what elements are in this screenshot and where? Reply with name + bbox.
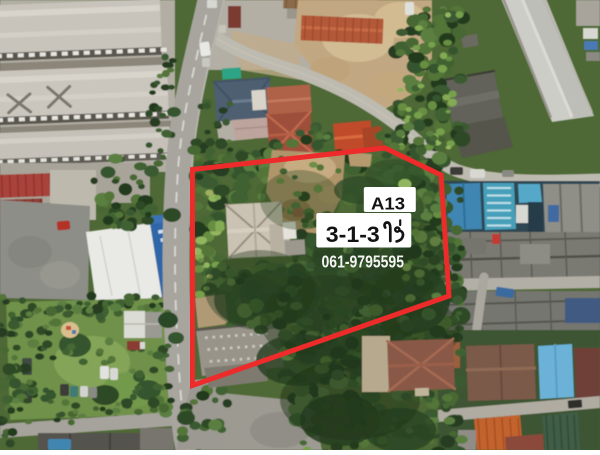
svg-text:3-1-3: 3-1-3 (326, 222, 380, 247)
svg-text:061-9795595: 061-9795595 (322, 251, 405, 271)
svg-text:A13: A13 (371, 193, 405, 213)
